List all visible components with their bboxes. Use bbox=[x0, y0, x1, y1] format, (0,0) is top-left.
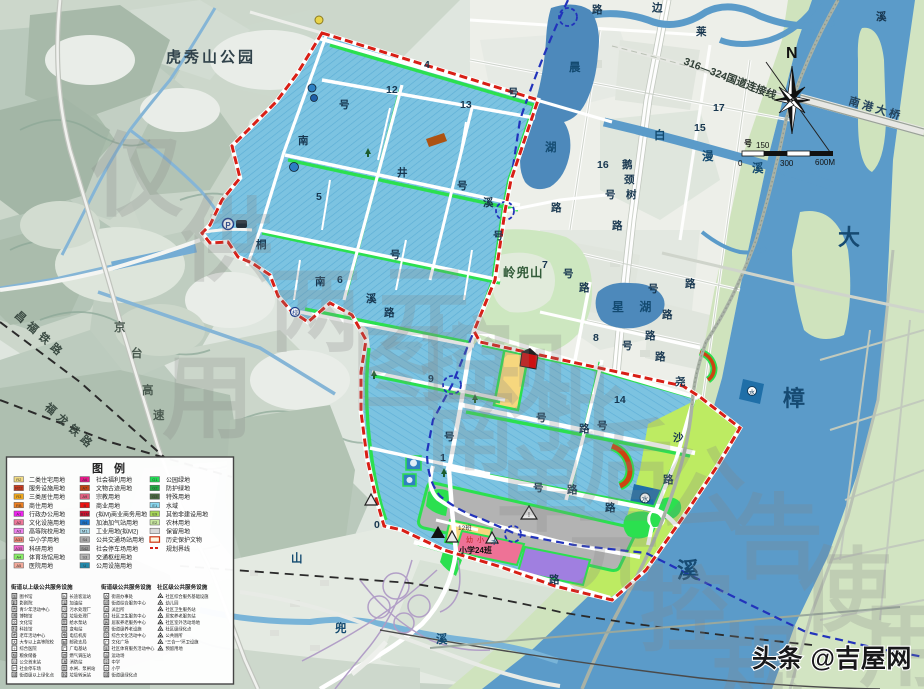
svg-text:青少年活动中心: 青少年活动中心 bbox=[20, 606, 51, 613]
svg-text:13: 13 bbox=[460, 99, 472, 111]
svg-text:15: 15 bbox=[694, 122, 706, 134]
svg-text:老年活动中心: 老年活动中心 bbox=[20, 632, 46, 639]
svg-text:600M: 600M bbox=[815, 158, 835, 167]
svg-text:广: 广 bbox=[105, 639, 109, 644]
svg-text:派: 派 bbox=[105, 607, 109, 612]
svg-text:社会福利用地: 社会福利用地 bbox=[96, 476, 132, 484]
svg-text:路: 路 bbox=[655, 350, 666, 363]
svg-text:小学24班: 小学24班 bbox=[458, 545, 492, 555]
svg-text:社会停车场: 社会停车场 bbox=[20, 665, 42, 672]
svg-text:R2: R2 bbox=[16, 477, 22, 482]
svg-text:水: 水 bbox=[749, 388, 756, 397]
svg-text:＋: ＋ bbox=[13, 647, 17, 651]
svg-text:树: 树 bbox=[626, 188, 637, 201]
svg-text:17: 17 bbox=[713, 102, 725, 114]
svg-text:消: 消 bbox=[63, 659, 67, 664]
svg-text:行政办公用地: 行政办公用地 bbox=[29, 510, 65, 518]
svg-text:体: 体 bbox=[105, 646, 109, 651]
svg-text:街道级公共服务设施: 街道级公共服务设施 bbox=[100, 583, 152, 591]
svg-text:文化广场: 文化广场 bbox=[112, 639, 130, 646]
svg-text:转: 转 bbox=[63, 672, 67, 677]
svg-text:路: 路 bbox=[645, 329, 656, 342]
svg-text:井: 井 bbox=[397, 166, 408, 179]
svg-text:文: 文 bbox=[13, 620, 17, 625]
svg-text:G3: G3 bbox=[152, 494, 158, 499]
svg-text:颈: 颈 bbox=[623, 174, 635, 186]
svg-text:博物馆: 博物馆 bbox=[20, 612, 34, 619]
svg-text:二类住宅用地: 二类住宅用地 bbox=[29, 476, 65, 484]
svg-text:商住用地: 商住用地 bbox=[29, 502, 53, 510]
svg-text:邮政支局: 邮政支局 bbox=[70, 639, 87, 646]
svg-text:兜: 兜 bbox=[335, 621, 347, 635]
svg-text:消防站: 消防站 bbox=[70, 658, 84, 665]
svg-text:S3: S3 bbox=[82, 554, 88, 559]
svg-text:特殊用地: 特殊用地 bbox=[166, 493, 190, 501]
svg-text:三类居住用地: 三类居住用地 bbox=[29, 493, 65, 501]
svg-text:影: 影 bbox=[13, 600, 17, 605]
svg-text:粮食储备: 粮食储备 bbox=[20, 652, 38, 659]
svg-text:社区卫生服务中心: 社区卫生服务中心 bbox=[112, 612, 147, 619]
svg-text:公交首末站: 公交首末站 bbox=[20, 658, 42, 665]
svg-text:居家养老服务站: 居家养老服务站 bbox=[166, 612, 197, 619]
svg-text:污: 污 bbox=[63, 607, 67, 612]
svg-text:头条 @吉屋网: 头条 @吉屋网 bbox=[752, 645, 912, 673]
svg-text:路: 路 bbox=[592, 3, 603, 16]
svg-text:图 例: 图 例 bbox=[92, 461, 129, 475]
svg-text:樟: 樟 bbox=[783, 386, 805, 411]
svg-text:社区综合服务基础设施: 社区综合服务基础设施 bbox=[166, 593, 210, 600]
svg-text:街道综合服务中心: 街道综合服务中心 bbox=[112, 599, 147, 606]
svg-text:用: 用 bbox=[162, 348, 254, 450]
svg-text:泵: 泵 bbox=[63, 665, 67, 670]
svg-text:E9: E9 bbox=[152, 511, 158, 516]
svg-text:路: 路 bbox=[685, 277, 696, 290]
svg-text:B1M: B1M bbox=[81, 511, 89, 516]
svg-text:运: 运 bbox=[105, 652, 109, 657]
svg-text:A9: A9 bbox=[82, 494, 88, 499]
svg-text:G1: G1 bbox=[152, 477, 158, 482]
svg-text:文化设施用地: 文化设施用地 bbox=[29, 519, 65, 527]
svg-text:文物古迹用地: 文物古迹用地 bbox=[96, 485, 132, 493]
svg-text:莱: 莱 bbox=[695, 25, 707, 38]
svg-text:博: 博 bbox=[13, 613, 17, 618]
svg-text:保留用地: 保留用地 bbox=[166, 528, 190, 536]
svg-text:其他非建设用地: 其他非建设用地 bbox=[166, 510, 208, 518]
svg-text:山: 山 bbox=[291, 551, 303, 565]
svg-text:服务设施用地: 服务设施用地 bbox=[29, 485, 65, 493]
svg-text:路: 路 bbox=[662, 308, 673, 321]
svg-text:16: 16 bbox=[597, 159, 609, 171]
svg-text:号: 号 bbox=[622, 340, 633, 352]
svg-text:号: 号 bbox=[457, 180, 468, 192]
svg-text:12: 12 bbox=[386, 84, 398, 96]
svg-text:边: 边 bbox=[651, 1, 663, 14]
svg-text:规划界线: 规划界线 bbox=[166, 545, 190, 553]
svg-text:综合文化活动中心: 综合文化活动中心 bbox=[112, 632, 147, 639]
svg-text:文化馆: 文化馆 bbox=[20, 619, 34, 626]
svg-text:街道以上级公共服务设施: 街道以上级公共服务设施 bbox=[10, 583, 73, 591]
svg-text:长: 长 bbox=[63, 593, 67, 598]
svg-text:大: 大 bbox=[13, 639, 17, 644]
svg-text:街道级养老设施: 街道级养老设施 bbox=[112, 626, 143, 633]
svg-text:派出所: 派出所 bbox=[112, 606, 126, 613]
svg-text:公园绿地: 公园绿地 bbox=[166, 476, 190, 484]
svg-text:运动场: 运动场 bbox=[112, 652, 126, 659]
svg-text:给水泵站: 给水泵站 bbox=[70, 619, 88, 626]
svg-text:科研用地: 科研用地 bbox=[29, 545, 53, 553]
svg-text:A3: A3 bbox=[16, 529, 22, 534]
svg-text:加油站: 加油站 bbox=[70, 599, 84, 606]
svg-text:幼: 幼 bbox=[466, 535, 473, 544]
svg-text:N: N bbox=[786, 45, 798, 62]
svg-text:水闸、泵闸站: 水闸、泵闸站 bbox=[70, 665, 96, 672]
svg-text:居家养老服务中心: 居家养老服务中心 bbox=[112, 619, 147, 626]
svg-text:绿: 绿 bbox=[13, 672, 17, 677]
svg-text:街道级以上绿化点: 街道级以上绿化点 bbox=[20, 671, 55, 678]
svg-text:公用设施用地: 公用设施用地 bbox=[96, 562, 132, 570]
svg-text:社区体育服务活动中心: 社区体育服务活动中心 bbox=[112, 645, 156, 652]
svg-text:0: 0 bbox=[738, 159, 743, 168]
svg-text:号: 号 bbox=[744, 139, 752, 148]
svg-text:⊟: ⊟ bbox=[13, 660, 16, 664]
svg-text:12班: 12班 bbox=[458, 523, 472, 532]
svg-text:养: 养 bbox=[105, 626, 109, 631]
svg-text:A2: A2 bbox=[16, 520, 22, 525]
svg-text:图: 图 bbox=[13, 594, 17, 598]
svg-text:图书馆: 图书馆 bbox=[20, 593, 34, 600]
svg-text:大专以上高等院校: 大专以上高等院校 bbox=[20, 639, 55, 646]
svg-text:工业用地(拟M2): 工业用地(拟M2) bbox=[96, 528, 138, 536]
svg-text:幼儿园: 幼儿园 bbox=[166, 599, 179, 606]
svg-text:宗教用地: 宗教用地 bbox=[96, 493, 120, 501]
svg-text:A1: A1 bbox=[16, 511, 22, 516]
svg-text:U: U bbox=[83, 563, 86, 568]
svg-text:小: 小 bbox=[105, 665, 109, 670]
svg-text:街道办事处: 街道办事处 bbox=[112, 593, 134, 600]
svg-text:4: 4 bbox=[424, 59, 430, 71]
svg-text:中小学用地: 中小学用地 bbox=[29, 536, 59, 544]
svg-text:科技馆: 科技馆 bbox=[20, 626, 34, 633]
svg-text:邮: 邮 bbox=[63, 639, 67, 644]
svg-text:长途客运站: 长途客运站 bbox=[70, 593, 92, 600]
svg-text:A33: A33 bbox=[15, 537, 23, 542]
svg-text:加油加气站用地: 加油加气站用地 bbox=[96, 519, 138, 527]
svg-text:A5: A5 bbox=[16, 563, 22, 568]
svg-text:RB: RB bbox=[16, 503, 22, 508]
svg-text:高等院校用地: 高等院校用地 bbox=[29, 528, 65, 536]
svg-text:湖: 湖 bbox=[545, 140, 557, 154]
svg-text:尧: 尧 bbox=[675, 375, 686, 388]
svg-text:供: 供 bbox=[181, 191, 273, 293]
svg-text:小学: 小学 bbox=[112, 665, 121, 672]
svg-text:G2: G2 bbox=[152, 486, 158, 491]
svg-text:台: 台 bbox=[131, 346, 143, 360]
svg-text:燃: 燃 bbox=[63, 652, 67, 657]
svg-text:路: 路 bbox=[579, 281, 590, 294]
svg-text:E2: E2 bbox=[152, 520, 158, 525]
svg-text:号: 号 bbox=[605, 189, 616, 201]
svg-text:广: 广 bbox=[63, 646, 67, 651]
svg-text:体育场馆用地: 体育场馆用地 bbox=[29, 553, 65, 561]
svg-text:变电站: 变电站 bbox=[70, 626, 84, 633]
svg-text:老: 老 bbox=[13, 633, 17, 638]
svg-text:社会停车场用地: 社会停车场用地 bbox=[96, 545, 138, 553]
svg-text:农林用地: 农林用地 bbox=[166, 519, 190, 527]
svg-text:电: 电 bbox=[63, 633, 67, 638]
svg-text:号: 号 bbox=[493, 230, 504, 242]
svg-text:社区卫生服务站: 社区卫生服务站 bbox=[166, 606, 197, 613]
svg-text:B4: B4 bbox=[82, 520, 88, 525]
svg-text:B: B bbox=[83, 503, 86, 508]
svg-text:广电基站: 广电基站 bbox=[70, 645, 88, 652]
svg-text:中学: 中学 bbox=[112, 658, 121, 665]
svg-text:号: 号 bbox=[563, 268, 574, 280]
svg-text:社区级公共服务设施: 社区级公共服务设施 bbox=[156, 583, 208, 591]
svg-text:路: 路 bbox=[612, 219, 623, 232]
svg-text:两: 两 bbox=[269, 261, 361, 363]
svg-text:交通枢纽用地: 交通枢纽用地 bbox=[96, 553, 132, 561]
svg-text:300: 300 bbox=[780, 159, 794, 168]
svg-text:污水处理厂: 污水处理厂 bbox=[70, 606, 92, 613]
svg-text:办: 办 bbox=[105, 593, 109, 598]
svg-text:R22: R22 bbox=[15, 486, 23, 491]
svg-text:京: 京 bbox=[114, 320, 126, 334]
svg-text:S4: S4 bbox=[82, 537, 88, 542]
svg-text:虎秀山公园: 虎秀山公园 bbox=[166, 48, 256, 66]
svg-text:A35: A35 bbox=[15, 546, 23, 551]
svg-text:社区室外活动场地: 社区室外活动场地 bbox=[166, 619, 201, 626]
svg-text:垃圾处理厂: 垃圾处理厂 bbox=[70, 612, 92, 619]
svg-text:用: 用 bbox=[859, 596, 924, 689]
svg-text:中: 中 bbox=[105, 659, 109, 664]
svg-text:鹅: 鹅 bbox=[622, 158, 633, 171]
svg-text:文: 文 bbox=[105, 633, 109, 638]
svg-text:公共交通场站用地: 公共交通场站用地 bbox=[96, 536, 144, 544]
svg-text:号: 号 bbox=[648, 283, 659, 295]
svg-text:溪: 溪 bbox=[436, 632, 448, 646]
svg-text:医院用地: 医院用地 bbox=[29, 562, 53, 570]
svg-text:垃圾转运站: 垃圾转运站 bbox=[70, 671, 92, 678]
svg-text:粮: 粮 bbox=[13, 652, 17, 657]
svg-text:燃气调压站: 燃气调压站 bbox=[70, 652, 92, 659]
svg-text:溪: 溪 bbox=[876, 10, 887, 23]
svg-text:(拟M)商业商务用地: (拟M)商业商务用地 bbox=[96, 510, 147, 518]
svg-text:R3: R3 bbox=[16, 494, 22, 499]
svg-text:A4: A4 bbox=[16, 554, 22, 559]
svg-text:青: 青 bbox=[13, 607, 17, 612]
svg-text:溪: 溪 bbox=[752, 161, 764, 175]
svg-text:M1: M1 bbox=[82, 529, 88, 534]
svg-text:大: 大 bbox=[838, 225, 860, 250]
svg-text:历史保护文物: 历史保护文物 bbox=[166, 536, 202, 544]
svg-text:号: 号 bbox=[508, 87, 519, 99]
svg-text:影剧院: 影剧院 bbox=[20, 599, 34, 606]
svg-text:A7: A7 bbox=[82, 486, 88, 491]
svg-text:变: 变 bbox=[63, 626, 67, 631]
svg-text:8: 8 bbox=[593, 332, 599, 344]
svg-text:社区级绿化点: 社区级绿化点 bbox=[166, 626, 192, 633]
svg-text:溪: 溪 bbox=[366, 292, 377, 305]
svg-text:垃: 垃 bbox=[63, 613, 67, 618]
svg-text:仅: 仅 bbox=[91, 126, 184, 228]
svg-text:电信机房: 电信机房 bbox=[70, 632, 87, 639]
svg-text:小: 小 bbox=[477, 535, 484, 544]
svg-text:漫: 漫 bbox=[702, 149, 714, 163]
svg-text:预留用地: 预留用地 bbox=[166, 645, 184, 652]
svg-text:号: 号 bbox=[339, 99, 350, 111]
svg-text:泵: 泵 bbox=[63, 620, 67, 625]
svg-text:5: 5 bbox=[316, 191, 322, 203]
svg-text:路: 路 bbox=[551, 201, 562, 214]
svg-text:综: 综 bbox=[105, 600, 109, 605]
svg-text:防护绿地: 防护绿地 bbox=[166, 485, 190, 493]
svg-text:街道级绿化点: 街道级绿化点 bbox=[112, 671, 138, 678]
svg-text:S42: S42 bbox=[81, 546, 89, 551]
svg-text:150: 150 bbox=[756, 141, 770, 150]
svg-text:晨: 晨 bbox=[569, 61, 581, 74]
svg-text:A6: A6 bbox=[82, 477, 88, 482]
svg-text:居: 居 bbox=[105, 620, 109, 625]
svg-text:南: 南 bbox=[298, 134, 309, 147]
svg-text:公共厕所: 公共厕所 bbox=[166, 632, 184, 639]
svg-text:⊕: ⊕ bbox=[105, 614, 108, 618]
svg-text:水域: 水域 bbox=[166, 502, 178, 510]
svg-text:溪: 溪 bbox=[483, 196, 494, 209]
svg-text:岭兜山: 岭兜山 bbox=[503, 265, 544, 280]
svg-text:综合医院: 综合医院 bbox=[20, 645, 38, 652]
svg-text:白: 白 bbox=[654, 128, 666, 142]
svg-text:油: 油 bbox=[63, 600, 67, 605]
svg-text:高: 高 bbox=[142, 383, 154, 397]
svg-text:绿: 绿 bbox=[105, 672, 109, 677]
svg-text:科: 科 bbox=[13, 626, 17, 631]
svg-text:星 湖: 星 湖 bbox=[612, 299, 657, 314]
svg-text:0: 0 bbox=[374, 519, 380, 531]
svg-text:“三合一”环卫设施: “三合一”环卫设施 bbox=[166, 639, 200, 646]
svg-text:E1: E1 bbox=[152, 503, 158, 508]
svg-text:路: 路 bbox=[549, 573, 560, 586]
svg-text:商业用地: 商业用地 bbox=[96, 502, 120, 510]
